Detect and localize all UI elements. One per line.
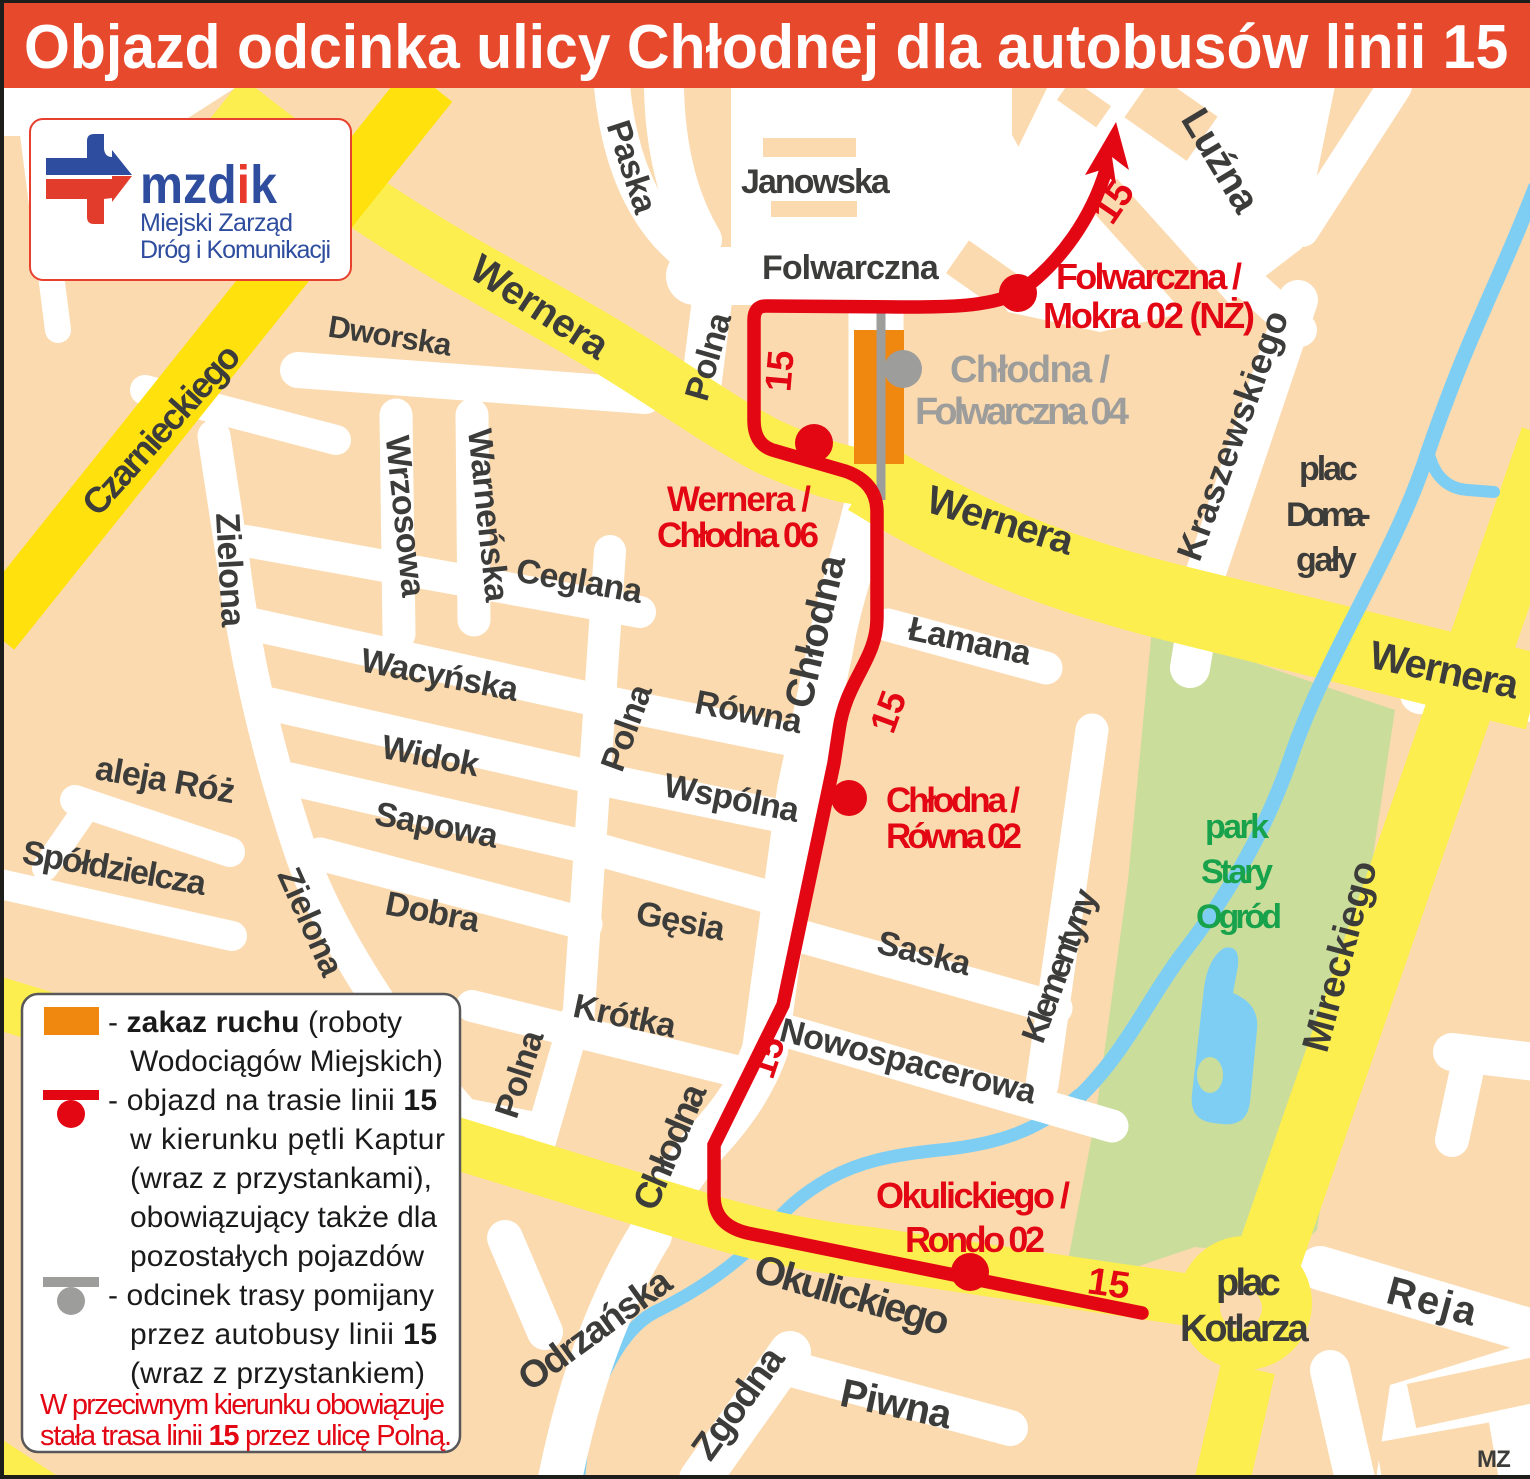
svg-text:(wraz z przystankami),: (wraz z przystankami),: [130, 1162, 432, 1195]
svg-text:pozostałych pojazdów: pozostałych pojazdów: [130, 1240, 424, 1273]
svg-text:15: 15: [757, 349, 801, 394]
svg-text:gały: gały: [1296, 541, 1357, 579]
svg-text:plac: plac: [1299, 450, 1357, 488]
svg-text:Chłodna /: Chłodna /: [886, 781, 1020, 820]
svg-text:Wernera /: Wernera /: [667, 480, 811, 519]
svg-text:Miejski Zarząd: Miejski Zarząd: [140, 209, 293, 237]
svg-text:mzdik: mzdik: [140, 155, 278, 215]
svg-text:stała trasa linii 15 przez uli: stała trasa linii 15 przez ulicę Polną.: [40, 1420, 452, 1452]
svg-text:Okulickiego /: Okulickiego /: [876, 1175, 1070, 1216]
svg-text:Folwarczna 04: Folwarczna 04: [915, 391, 1129, 433]
svg-text:Rondo 02: Rondo 02: [905, 1219, 1045, 1260]
svg-text:MZ: MZ: [1477, 1446, 1510, 1473]
svg-text:Mokra 02 (NŻ): Mokra 02 (NŻ): [1043, 295, 1255, 336]
svg-text:- zakaz ruchu (roboty: - zakaz ruchu (roboty: [108, 1006, 402, 1039]
svg-text:plac: plac: [1216, 1262, 1281, 1304]
svg-text:Chłodna 06: Chłodna 06: [657, 516, 819, 555]
svg-text:obowiązujący także dla: obowiązujący także dla: [130, 1201, 437, 1234]
svg-text:- objazd na trasie linii 15: - objazd na trasie linii 15: [108, 1084, 437, 1117]
svg-text:Kotlarza: Kotlarza: [1180, 1308, 1310, 1350]
svg-text:(wraz z przystankiem): (wraz z przystankiem): [130, 1357, 425, 1390]
svg-text:- odcinek trasy pomijany: - odcinek trasy pomijany: [108, 1279, 434, 1312]
svg-text:15: 15: [1085, 1260, 1133, 1307]
svg-text:Dróg i Komunikacji: Dróg i Komunikacji: [140, 236, 331, 264]
svg-text:przez autobusy linii 15: przez autobusy linii 15: [130, 1318, 437, 1351]
svg-text:Folwarczna: Folwarczna: [762, 249, 940, 287]
svg-text:Równa 02: Równa 02: [886, 817, 1022, 856]
svg-text:park: park: [1205, 808, 1269, 846]
svg-text:W przeciwnym kierunku obowiązu: W przeciwnym kierunku obowiązuje: [40, 1389, 445, 1421]
svg-text:Ogród: Ogród: [1196, 898, 1282, 936]
svg-text:Stary: Stary: [1201, 853, 1273, 891]
svg-text:Wodociągów Miejskich): Wodociągów Miejskich): [130, 1045, 443, 1078]
svg-text:Doma-: Doma-: [1286, 496, 1370, 534]
svg-text:Janowska: Janowska: [741, 163, 891, 201]
svg-text:Chłodna /: Chłodna /: [950, 349, 1110, 391]
svg-text:Folwarczna /: Folwarczna /: [1056, 256, 1242, 297]
svg-text:Objazd odcinka ulicy Chłodnej: Objazd odcinka ulicy Chłodnej dla autobu…: [24, 12, 1508, 81]
svg-text:w kierunku pętli Kaptur: w kierunku pętli Kaptur: [129, 1123, 445, 1156]
svg-text:Zielona: Zielona: [208, 512, 252, 629]
